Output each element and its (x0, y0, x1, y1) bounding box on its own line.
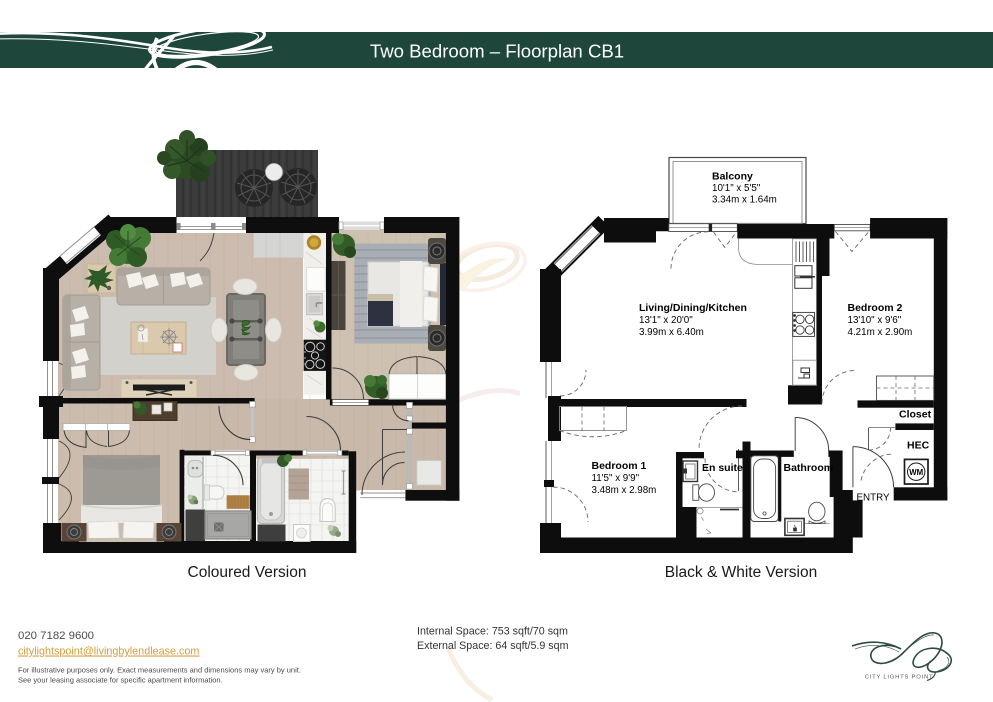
svg-text:WM: WM (909, 468, 923, 477)
svg-text:13'10" x 9'6": 13'10" x 9'6" (848, 315, 902, 326)
svg-text:020 7182 9600: 020 7182 9600 (18, 630, 94, 642)
svg-text:3.48m x 2.98m: 3.48m x 2.98m (592, 485, 657, 496)
svg-text:Balcony: Balcony (712, 171, 753, 183)
svg-text:External Space: 64 sqft/5.9 s: External Space: 64 sqft/5.9 sqm (417, 640, 569, 652)
svg-text:ENTRY: ENTRY (857, 493, 890, 504)
svg-text:Coloured Version: Coloured Version (188, 564, 307, 581)
svg-text:10'1" x 5'5": 10'1" x 5'5" (712, 183, 761, 194)
svg-text:CITY LIGHTS POINT: CITY LIGHTS POINT (865, 675, 934, 681)
svg-text:See your leasing associate for: See your leasing associate for specific … (18, 676, 223, 685)
svg-text:Bathroom: Bathroom (784, 462, 834, 474)
svg-text:citylightspoint@livingbylendle: citylightspoint@livingbylendlease.com (18, 646, 199, 658)
svg-text:Bedroom 2: Bedroom 2 (848, 302, 903, 314)
svg-text:13'1" x 20'0": 13'1" x 20'0" (639, 315, 693, 326)
svg-text:11'5" x 9'9": 11'5" x 9'9" (592, 473, 640, 484)
svg-text:4.21m x 2.90m: 4.21m x 2.90m (848, 327, 913, 338)
svg-text:Black & White Version: Black & White Version (665, 564, 817, 581)
svg-text:En suite: En suite (702, 462, 743, 474)
svg-text:HEC: HEC (907, 440, 930, 452)
svg-text:For illustrative purposes only: For illustrative purposes only. Exact me… (18, 666, 301, 675)
svg-text:Bedroom 1: Bedroom 1 (592, 460, 647, 472)
svg-text:Living/Dining/Kitchen: Living/Dining/Kitchen (639, 302, 747, 314)
svg-text:3.34m x 1.64m: 3.34m x 1.64m (712, 195, 777, 206)
svg-text:Two Bedroom – Floorplan CB1: Two Bedroom – Floorplan CB1 (370, 41, 624, 62)
svg-text:Internal Space: 753 sqft/70 s: Internal Space: 753 sqft/70 sqm (417, 626, 568, 638)
svg-text:Closet: Closet (899, 409, 932, 421)
svg-text:3.99m x 6.40m: 3.99m x 6.40m (639, 327, 704, 338)
